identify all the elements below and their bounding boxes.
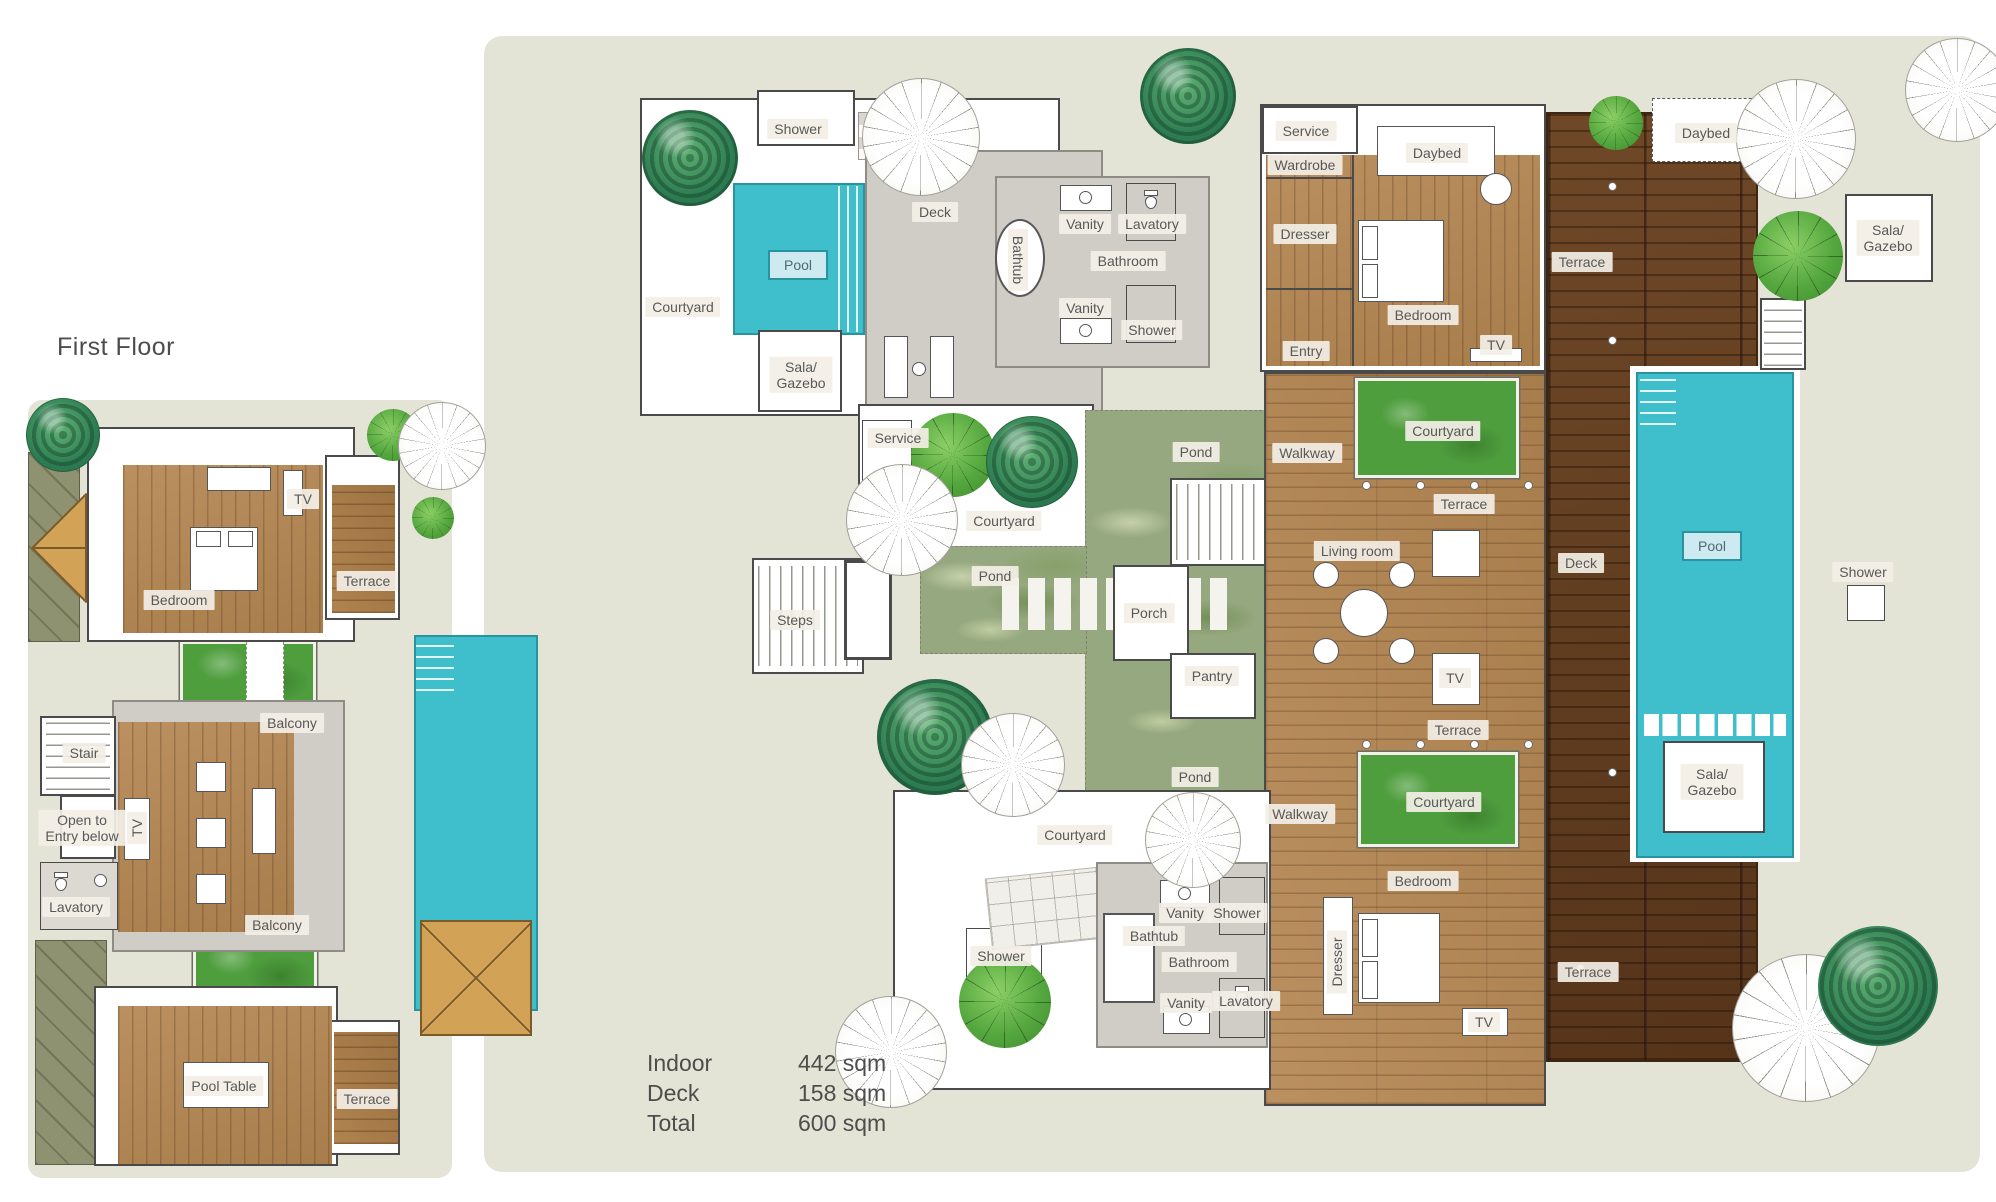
sofa xyxy=(196,874,226,904)
tree-icon xyxy=(1589,96,1643,150)
bench xyxy=(884,336,908,398)
deck-light-dot xyxy=(1608,182,1617,191)
tree-icon xyxy=(1145,792,1241,888)
deck-light-dot xyxy=(1576,561,1585,570)
pool-tile-row xyxy=(1644,714,1786,736)
sofa xyxy=(196,762,226,792)
tree-icon xyxy=(412,497,454,539)
dining-chair xyxy=(1313,562,1339,588)
tree-icon xyxy=(846,464,958,576)
pillow xyxy=(196,531,221,547)
entry-steps-treads xyxy=(758,566,858,666)
open-to-entry-room xyxy=(60,795,116,859)
deck-light-dot xyxy=(1608,768,1617,777)
post-dot xyxy=(1524,740,1533,749)
toilet-icon xyxy=(1235,986,1249,1006)
pool-table xyxy=(183,1062,269,1108)
area-label: Indoor xyxy=(647,1050,798,1077)
stair-treads-left xyxy=(46,722,110,790)
bench-left-bedroom xyxy=(207,467,271,491)
sink-icon xyxy=(1178,887,1191,900)
dining-chair xyxy=(1313,638,1339,664)
sink-icon xyxy=(1179,1013,1192,1026)
corridor-dashed xyxy=(246,637,284,703)
round-chair xyxy=(1480,173,1512,205)
gazebo-roof-left-pool xyxy=(420,920,532,1036)
pantry-room xyxy=(1170,653,1256,719)
area-label: Total xyxy=(647,1110,798,1137)
wall xyxy=(1352,155,1354,366)
sink-icon xyxy=(1079,324,1092,337)
tree-icon xyxy=(986,416,1078,508)
daybed-north xyxy=(1377,126,1495,176)
tv-console-left-lounge xyxy=(124,798,150,860)
bathtub-south xyxy=(1103,913,1155,1003)
pillow xyxy=(1362,226,1378,260)
tree-icon xyxy=(862,78,980,196)
pillow xyxy=(1362,264,1378,298)
sala-gazebo-master xyxy=(758,330,842,412)
shower-room-top-left xyxy=(757,90,855,146)
dresser-south xyxy=(1323,897,1353,1015)
toilet-icon xyxy=(54,872,68,892)
dining-table xyxy=(1340,589,1388,637)
courtyard-green-upper-area xyxy=(1355,378,1519,478)
tree-icon xyxy=(1753,211,1843,301)
tree-icon xyxy=(961,713,1065,817)
tv-console-north xyxy=(1470,348,1522,362)
tree-icon xyxy=(642,110,738,206)
deck-light-dot xyxy=(1576,964,1585,973)
shower-room-south-2 xyxy=(1219,877,1265,935)
tree-icon xyxy=(26,398,100,472)
floorplan-canvas: First Floor Indoor442 sqmDeck158 sqmTota… xyxy=(0,0,1996,1202)
tree-icon xyxy=(1818,926,1938,1046)
area-summary-row: Total600 sqm xyxy=(647,1108,886,1138)
area-summary-row: Indoor442 sqm xyxy=(647,1048,886,1078)
post-dot xyxy=(1362,481,1371,490)
post-dot xyxy=(1416,481,1425,490)
wall xyxy=(1266,177,1354,179)
dining-chair xyxy=(1389,638,1415,664)
floor-left-terrace-upper xyxy=(332,485,395,613)
tree-icon xyxy=(398,402,486,490)
post-dot xyxy=(1524,481,1533,490)
sink-icon xyxy=(94,874,107,887)
sala-gazebo-east xyxy=(1845,194,1933,282)
post-dot xyxy=(1416,740,1425,749)
pillow xyxy=(1362,961,1378,999)
pillow xyxy=(1362,919,1378,957)
sink-icon xyxy=(1079,191,1092,204)
pillow xyxy=(228,531,253,547)
service-room-north xyxy=(1262,106,1358,154)
sala-gazebo-pool xyxy=(1663,741,1765,833)
shower-room-east xyxy=(1847,585,1885,621)
area-value: 158 sqm xyxy=(798,1080,886,1107)
courtyard-green-lower-area xyxy=(1358,752,1518,847)
bench xyxy=(930,336,954,398)
seat-box-living xyxy=(1432,530,1480,577)
area-value: 442 sqm xyxy=(798,1050,886,1077)
entry-gate xyxy=(844,560,892,660)
deck-light-dot xyxy=(1608,336,1617,345)
post-dot xyxy=(1362,740,1371,749)
pool-main-steps xyxy=(1640,377,1676,425)
post-dot xyxy=(1470,740,1479,749)
area-label: Deck xyxy=(647,1080,798,1107)
post-dot xyxy=(1470,481,1479,490)
area-summary-row: Deck158 sqm xyxy=(647,1078,886,1108)
pool-left-steps xyxy=(416,639,454,691)
tv-console-south xyxy=(1462,1008,1508,1036)
tree-icon xyxy=(1736,79,1856,199)
sofa xyxy=(196,818,226,848)
page-title: First Floor xyxy=(57,333,175,362)
staircase-mid-treads xyxy=(1176,484,1260,560)
table-left-lounge xyxy=(252,788,276,854)
tree-icon xyxy=(1140,48,1236,144)
wall xyxy=(1266,288,1354,290)
side-table xyxy=(912,362,926,376)
toilet-icon xyxy=(1144,190,1158,210)
pool-master-steps xyxy=(838,186,863,332)
dining-chair xyxy=(1389,562,1415,588)
porch-room xyxy=(1113,565,1189,661)
steps-pool-side-treads xyxy=(1764,302,1802,366)
tree-icon xyxy=(959,956,1051,1048)
tv-cabinet-living xyxy=(1432,653,1480,705)
tv-console-left-bedroom xyxy=(283,470,303,516)
lavatory-room-left xyxy=(40,862,118,930)
floor-left-terrace-lower xyxy=(334,1032,398,1144)
area-summary: Indoor442 sqmDeck158 sqmTotal600 sqm xyxy=(647,1048,886,1138)
bathtub-icon xyxy=(995,219,1045,297)
shower-room-top-2 xyxy=(1126,285,1176,343)
area-value: 600 sqm xyxy=(798,1110,886,1137)
